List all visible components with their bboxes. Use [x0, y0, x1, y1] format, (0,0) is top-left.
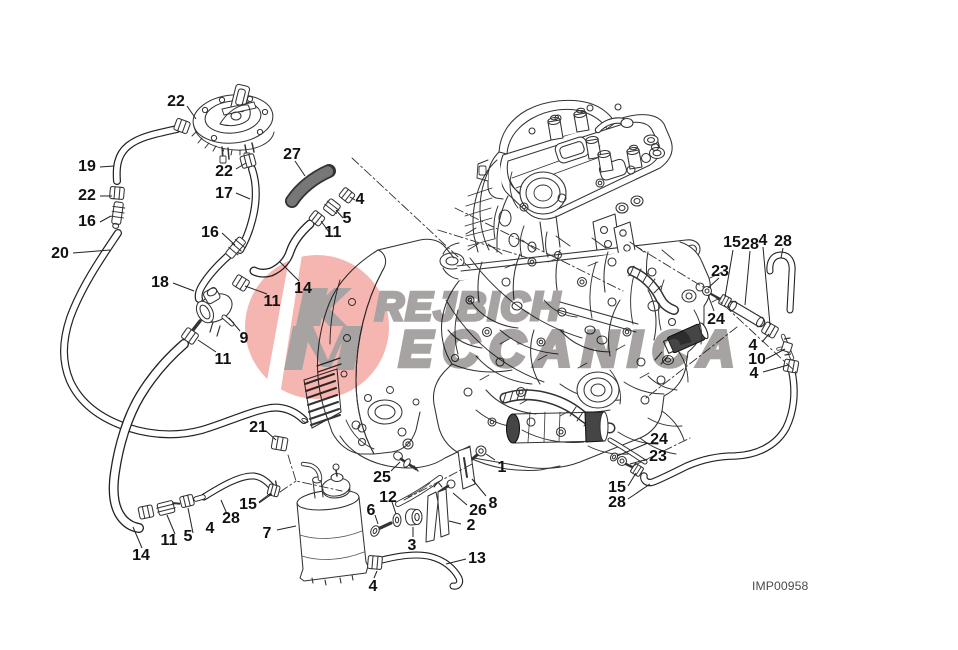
svg-text:16: 16	[201, 224, 219, 241]
svg-text:15: 15	[723, 234, 741, 251]
svg-text:12: 12	[379, 489, 397, 506]
svg-text:5: 5	[343, 210, 352, 227]
svg-text:28: 28	[222, 510, 240, 527]
svg-text:1: 1	[498, 459, 507, 476]
svg-text:14: 14	[132, 547, 150, 564]
svg-text:28: 28	[774, 233, 792, 250]
svg-text:11: 11	[161, 532, 178, 549]
svg-text:23: 23	[711, 263, 729, 280]
svg-text:4: 4	[750, 365, 759, 382]
svg-text:6: 6	[367, 502, 376, 519]
svg-text:9: 9	[240, 330, 249, 347]
svg-text:3: 3	[408, 537, 417, 554]
svg-text:4: 4	[356, 191, 365, 208]
svg-text:18: 18	[151, 274, 169, 291]
svg-text:19: 19	[78, 158, 96, 175]
svg-text:25: 25	[373, 469, 391, 486]
svg-text:15: 15	[239, 496, 257, 513]
svg-text:20: 20	[51, 245, 69, 262]
svg-text:4: 4	[206, 520, 215, 537]
svg-text:22: 22	[215, 163, 233, 180]
svg-text:22: 22	[167, 93, 185, 110]
svg-text:7: 7	[263, 525, 272, 542]
svg-text:23: 23	[649, 448, 667, 465]
svg-text:ECCANICA: ECCANICA	[399, 321, 745, 377]
svg-text:24: 24	[650, 431, 668, 448]
svg-text:27: 27	[283, 146, 301, 163]
svg-text:4: 4	[759, 232, 768, 249]
svg-text:24: 24	[707, 311, 725, 328]
svg-text:IMP00958: IMP00958	[752, 579, 808, 593]
svg-text:2: 2	[467, 517, 476, 534]
svg-text:28: 28	[741, 236, 759, 253]
svg-text:8: 8	[489, 495, 498, 512]
svg-text:4: 4	[369, 578, 378, 595]
svg-text:17: 17	[215, 185, 233, 202]
svg-text:11: 11	[215, 351, 232, 368]
svg-text:11: 11	[264, 293, 281, 310]
svg-text:5: 5	[184, 528, 193, 545]
svg-text:21: 21	[249, 419, 267, 436]
svg-text:26: 26	[469, 502, 487, 519]
svg-text:14: 14	[294, 280, 312, 297]
svg-text:28: 28	[608, 494, 626, 511]
svg-text:16: 16	[78, 213, 96, 230]
svg-text:22: 22	[78, 187, 96, 204]
svg-text:11: 11	[325, 224, 342, 241]
svg-text:13: 13	[468, 550, 486, 567]
